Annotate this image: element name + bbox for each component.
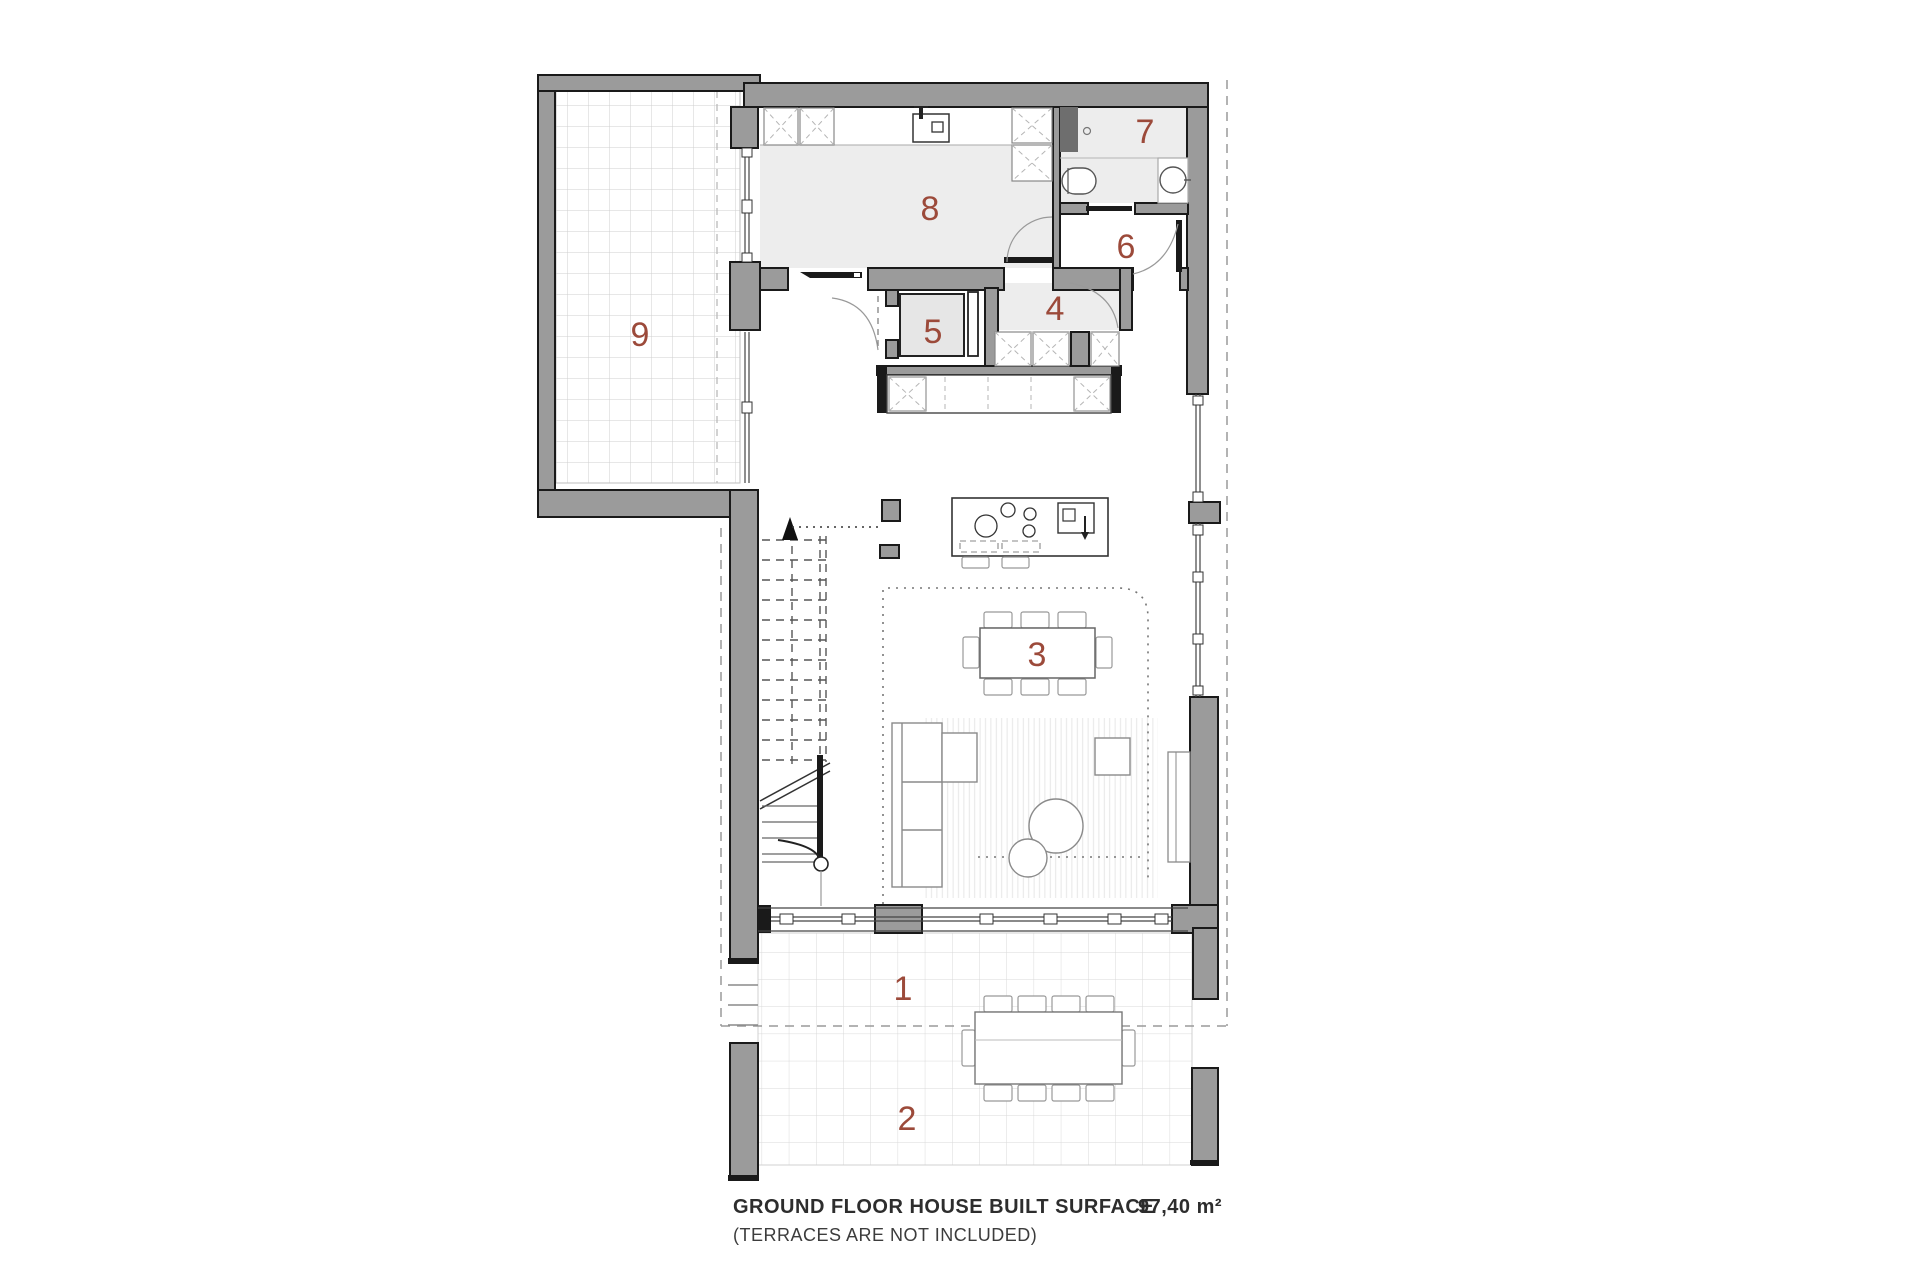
room-label-9: 9 — [631, 316, 650, 354]
stair-newel-post — [814, 857, 828, 871]
footer-note: (TERRACES ARE NOT INCLUDED) — [733, 1225, 1037, 1245]
house-right-wall-upper — [1187, 107, 1208, 394]
stair-direction-arrow — [782, 517, 798, 540]
counter-back-wall — [877, 366, 1121, 375]
terrace-9-tiles — [556, 91, 740, 483]
house-left-wall — [730, 490, 758, 963]
room-label-1: 1 — [894, 970, 913, 1008]
toilet-icon — [1062, 168, 1096, 194]
bottom-wall-pier — [875, 905, 922, 933]
room-label-4: 4 — [1046, 290, 1065, 328]
bath-wall-b — [1135, 203, 1188, 214]
house-top-wall — [744, 83, 1208, 107]
bathroom-door-leaf — [1086, 206, 1132, 211]
kitchen-island — [952, 498, 1108, 568]
terrace-9-left-wall — [538, 75, 555, 517]
room-label-6: 6 — [1117, 228, 1136, 266]
room-label-5: 5 — [924, 313, 943, 351]
terrace-right-pier-2 — [1192, 1068, 1218, 1165]
garden-steps — [728, 985, 758, 1025]
kitchen-counter — [887, 375, 1111, 413]
room-4-right-wall — [1120, 268, 1132, 330]
island-stools — [962, 557, 1029, 568]
sliding-door-leaf — [800, 272, 862, 278]
room-label-3: 3 — [1028, 636, 1047, 674]
footer: GROUND FLOOR HOUSE BUILT SURFACE 97,40 m… — [733, 1196, 1222, 1245]
bathroom-duct — [1060, 107, 1078, 152]
entry-window-pier-top — [731, 107, 758, 148]
room-5-door-panel — [968, 292, 978, 356]
hall-door-swing — [1133, 224, 1178, 274]
tv-bench — [1168, 752, 1190, 862]
terrace-9-top-wall — [538, 75, 760, 91]
room-label-2: 2 — [898, 1100, 917, 1138]
terrace-right-pier-1 — [1193, 928, 1218, 999]
right-wall-pier-mid — [1189, 502, 1220, 523]
washbasin-icon — [1160, 167, 1186, 193]
column — [1071, 332, 1089, 366]
side-table — [1095, 738, 1130, 775]
entry-window-pier-mid — [730, 262, 760, 330]
right-wall-pier-lower — [1190, 697, 1218, 932]
island-post-2 — [880, 545, 899, 558]
storage-5 — [832, 292, 978, 356]
island-post-1 — [882, 500, 900, 521]
stairs — [760, 517, 878, 906]
stair-handrail — [817, 755, 823, 861]
hallway-6 — [1133, 220, 1182, 274]
room-label-7: 7 — [1136, 113, 1155, 151]
footer-area-value: 97,40 m² — [1138, 1196, 1222, 1218]
bath-wall-a — [1060, 203, 1088, 214]
room-8-door-leaf — [1004, 257, 1053, 263]
terrace-9-bottom-wall — [538, 490, 744, 517]
terrace-left-wall — [730, 1043, 758, 1180]
room-5-door-swing — [832, 298, 878, 350]
footer-title: GROUND FLOOR HOUSE BUILT SURFACE — [733, 1196, 1154, 1218]
wall-8-7 — [1053, 107, 1060, 268]
room-label-8: 8 — [921, 190, 940, 228]
kitchen-sink-icon — [913, 106, 949, 142]
floor-plan-drawing: 1 2 3 4 5 6 7 8 9 GROUND FLOOR HOUSE BUI… — [0, 0, 1920, 1280]
floor-plan-page: 1 2 3 4 5 6 7 8 9 GROUND FLOOR HOUSE BUI… — [0, 0, 1920, 1280]
